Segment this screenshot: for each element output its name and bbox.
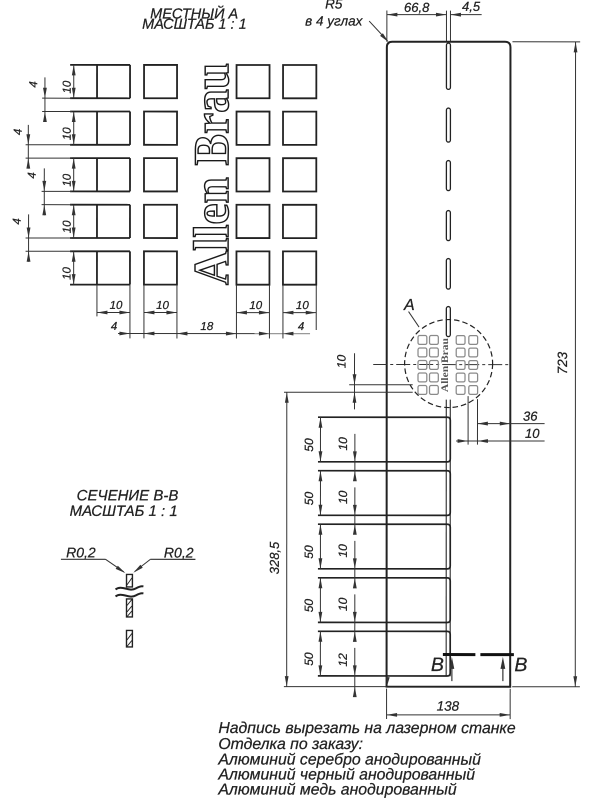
svg-text:В: В — [514, 654, 527, 676]
svg-text:10: 10 — [336, 490, 350, 504]
svg-text:В: В — [431, 654, 444, 676]
svg-text:Надпись вырезать на лазерном с: Надпись вырезать на лазерном станке — [218, 720, 516, 737]
svg-text:4: 4 — [111, 321, 117, 333]
svg-text:Отделка по заказу:: Отделка по заказу: — [218, 736, 363, 753]
svg-text:10: 10 — [336, 437, 350, 451]
svg-text:138: 138 — [437, 699, 460, 714]
svg-text:18: 18 — [200, 321, 213, 333]
svg-text:10: 10 — [525, 426, 540, 441]
svg-text:СЕЧЕНИЕ В-В: СЕЧЕНИЕ В-В — [77, 487, 179, 504]
svg-text:R0,2: R0,2 — [66, 544, 96, 560]
svg-text:50: 50 — [302, 652, 316, 666]
svg-text:10: 10 — [62, 173, 74, 186]
svg-text:R5: R5 — [325, 0, 343, 12]
svg-text:10: 10 — [336, 544, 350, 558]
svg-text:4: 4 — [27, 172, 39, 178]
svg-text:R0,2: R0,2 — [164, 544, 194, 560]
svg-text:10: 10 — [62, 266, 74, 279]
svg-text:36: 36 — [523, 409, 538, 424]
svg-text:50: 50 — [302, 545, 316, 559]
svg-text:10: 10 — [62, 80, 74, 93]
svg-text:328,5: 328,5 — [267, 541, 282, 574]
svg-text:50: 50 — [302, 438, 316, 452]
svg-text:10: 10 — [62, 127, 74, 140]
svg-text:12: 12 — [336, 653, 350, 667]
svg-text:10: 10 — [296, 300, 309, 312]
svg-text:10: 10 — [62, 220, 74, 233]
svg-text:50: 50 — [302, 599, 316, 613]
svg-text:50: 50 — [302, 492, 316, 506]
svg-text:10: 10 — [156, 300, 169, 312]
svg-text:4: 4 — [13, 129, 25, 135]
svg-text:4: 4 — [12, 218, 24, 224]
svg-text:в 4 углах: в 4 углах — [305, 14, 363, 29]
svg-text:МАСШТАБ 1 : 1: МАСШТАБ 1 : 1 — [70, 503, 178, 520]
svg-text:723: 723 — [555, 351, 570, 374]
svg-text:МАСШТАБ 1 : 1: МАСШТАБ 1 : 1 — [142, 17, 246, 33]
svg-text:Allen Brau: Allen Brau — [183, 63, 239, 285]
svg-text:Allen Brau: Allen Brau — [440, 338, 451, 393]
svg-text:10: 10 — [335, 355, 349, 369]
svg-text:66,8: 66,8 — [404, 0, 430, 15]
svg-text:Алюминий медь анодированный: Алюминий медь анодированный — [217, 781, 457, 798]
svg-text:4,5: 4,5 — [462, 0, 481, 14]
svg-text:10: 10 — [110, 300, 123, 312]
svg-text:4: 4 — [298, 321, 304, 333]
svg-text:4: 4 — [28, 81, 40, 87]
svg-text:10: 10 — [336, 597, 350, 611]
svg-text:10: 10 — [249, 300, 262, 312]
